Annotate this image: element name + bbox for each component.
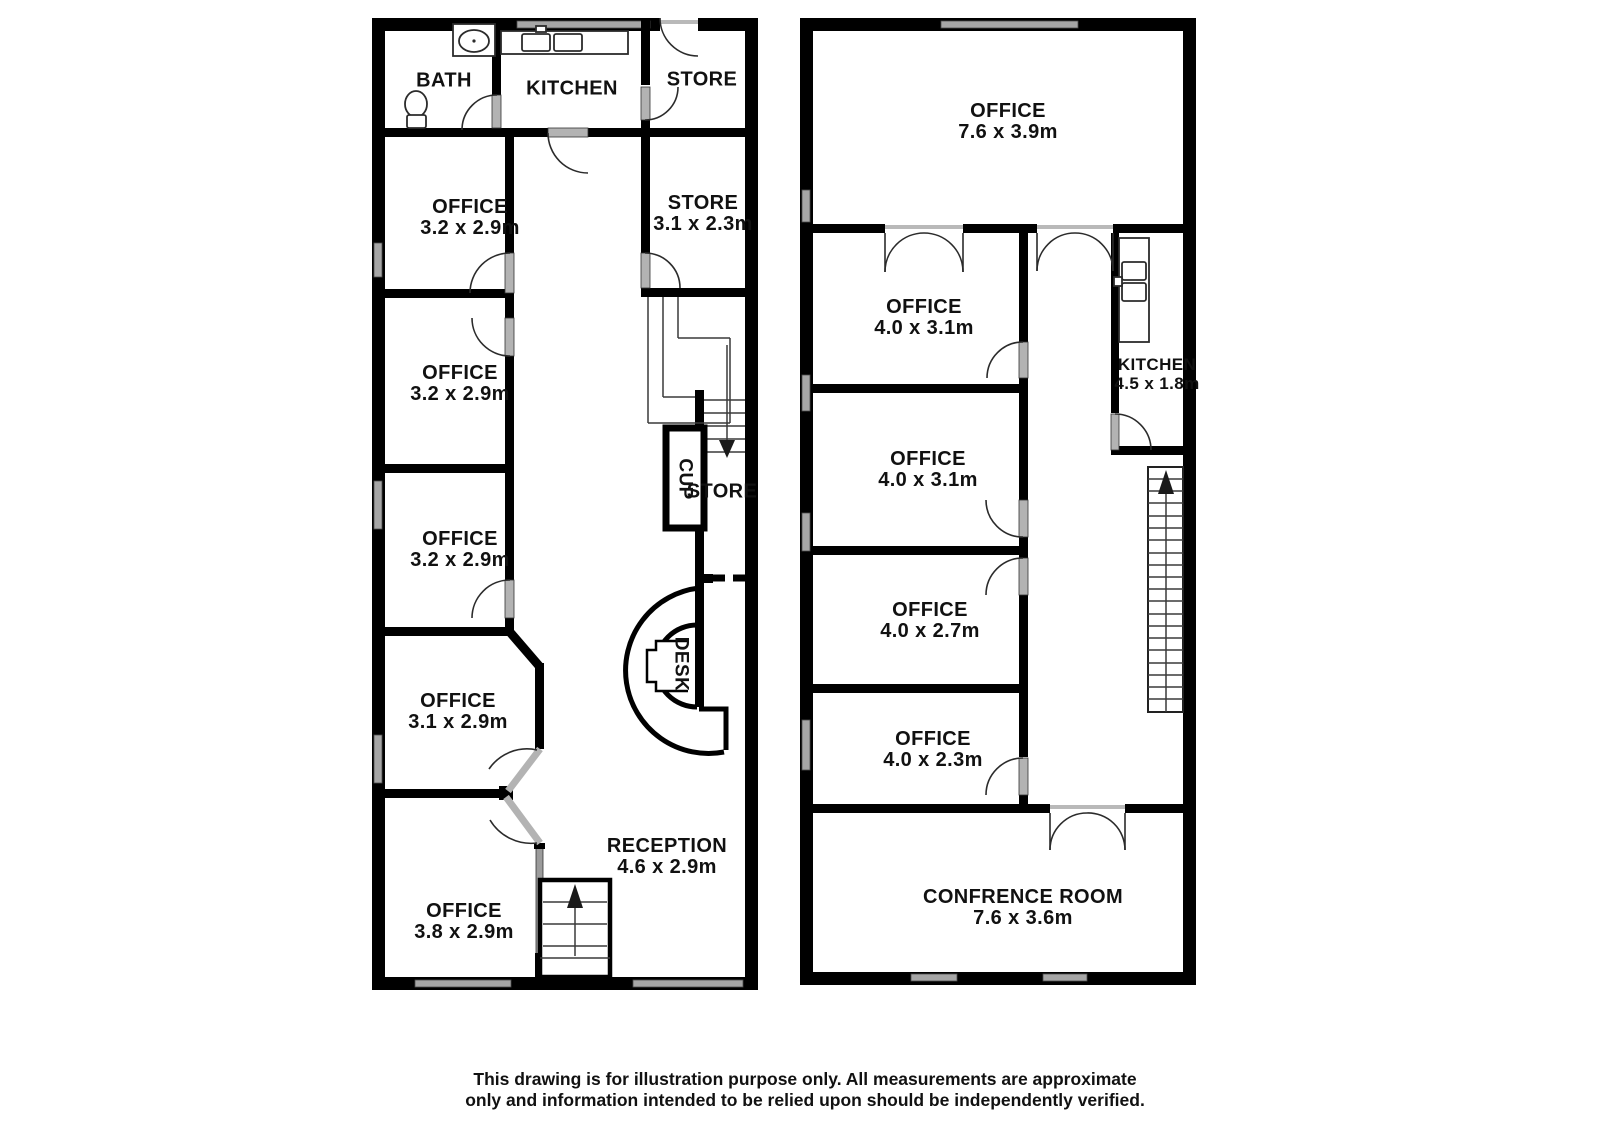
door-arc — [986, 558, 1023, 595]
room-label-kitchen-ground: KITCHEN — [526, 79, 618, 100]
room-dims: 4.0 x 3.1m — [878, 470, 978, 491]
room-label-office-4: OFFICE3.1 x 2.9m — [408, 691, 508, 733]
room-label-r-kitchen: KITCHEN4.5 x 1.8m — [1114, 355, 1199, 393]
room-name: OFFICE — [410, 529, 510, 550]
room-label-r-office-3: OFFICE4.0 x 2.7m — [880, 600, 980, 642]
room-name: KITCHEN — [526, 79, 618, 100]
room-label-office-2: OFFICE3.2 x 2.9m — [410, 363, 510, 405]
door-arc — [1075, 233, 1113, 271]
room-label-store-small: STORE — [687, 482, 758, 503]
disclaimer-text: This drawing is for illustration purpose… — [465, 1069, 1145, 1111]
room-label-office-1: OFFICE3.2 x 2.9m — [420, 197, 520, 239]
door-arc — [986, 500, 1023, 537]
windows — [802, 21, 1087, 981]
room-name: DESK — [671, 637, 692, 691]
room-dims: 7.6 x 3.9m — [958, 122, 1058, 143]
door-arc — [470, 253, 510, 293]
room-name: OFFICE — [410, 363, 510, 384]
bath-sink-icon — [453, 24, 495, 56]
room-dims: 3.2 x 2.9m — [410, 550, 510, 571]
door-arc — [986, 758, 1023, 795]
room-name: STORE — [687, 482, 758, 503]
kitchen-sink-icon — [1114, 238, 1149, 342]
door-arc — [472, 318, 510, 356]
room-label-office-3: OFFICE3.2 x 2.9m — [410, 529, 510, 571]
disclaimer-line-1: This drawing is for illustration purpose… — [465, 1069, 1145, 1090]
floorplan-drawing — [0, 0, 1600, 1132]
room-name: OFFICE — [878, 449, 978, 470]
room-label-conference: CONFRENCE ROOM7.6 x 3.6m — [923, 887, 1123, 929]
room-dims: 4.0 x 2.7m — [880, 621, 980, 642]
room-name: OFFICE — [408, 691, 508, 712]
room-name: BATH — [416, 71, 472, 92]
room-name: STORE — [667, 70, 738, 91]
room-dims: 3.1 x 2.9m — [408, 712, 508, 733]
disclaimer-line-2: only and information intended to be reli… — [465, 1090, 1145, 1111]
room-dims: 4.0 x 3.1m — [874, 318, 974, 339]
door-arc — [987, 342, 1023, 378]
room-name: OFFICE — [420, 197, 520, 218]
room-dims: 4.5 x 1.8m — [1114, 374, 1199, 393]
door-arc — [1115, 414, 1151, 450]
right-floor-plan — [800, 18, 1196, 985]
room-name: OFFICE — [958, 101, 1058, 122]
door-arc — [924, 233, 963, 272]
room-dims: 3.8 x 2.9m — [414, 922, 514, 943]
room-label-r-office-2: OFFICE4.0 x 3.1m — [878, 449, 978, 491]
room-label-r-office-4: OFFICE4.0 x 2.3m — [883, 729, 983, 771]
door-arc — [472, 580, 510, 618]
desk-label: DESK — [671, 637, 692, 691]
toilet-icon — [405, 91, 427, 128]
door-arc — [885, 233, 924, 272]
room-label-reception: RECEPTION4.6 x 2.9m — [607, 836, 727, 878]
room-label-store-mid: STORE3.1 x 2.3m — [653, 193, 753, 235]
room-name: OFFICE — [874, 297, 974, 318]
room-label-bath: BATH — [416, 71, 472, 92]
room-label-office-large: OFFICE7.6 x 3.9m — [958, 101, 1058, 143]
room-label-r-office-1: OFFICE4.0 x 3.1m — [874, 297, 974, 339]
room-dims: 3.1 x 2.3m — [653, 214, 753, 235]
room-name: OFFICE — [880, 600, 980, 621]
room-dims: 7.6 x 3.6m — [923, 908, 1123, 929]
door-arc — [548, 133, 588, 173]
room-name: OFFICE — [883, 729, 983, 750]
stairs-up-icon — [1148, 467, 1183, 712]
room-name: OFFICE — [414, 901, 514, 922]
kitchen-sink-icon — [501, 26, 628, 54]
room-name: KITCHEN — [1114, 355, 1199, 374]
door-arc — [1087, 813, 1125, 850]
room-name: STORE — [653, 193, 753, 214]
room-dims: 4.6 x 2.9m — [607, 857, 727, 878]
room-name: CONFRENCE ROOM — [923, 887, 1123, 908]
exterior-walls — [800, 18, 1196, 985]
floorplan-page: BATH KITCHEN STORE OFFICE3.2 x 2.9m STOR… — [0, 0, 1600, 1132]
room-dims: 3.2 x 2.9m — [420, 218, 520, 239]
room-label-store-top: STORE — [667, 70, 738, 91]
stairs-up-icon — [540, 880, 610, 977]
room-dims: 4.0 x 2.3m — [883, 750, 983, 771]
room-dims: 3.2 x 2.9m — [410, 384, 510, 405]
door-arc — [1037, 233, 1075, 271]
door-arc — [1050, 813, 1087, 850]
room-label-office-5: OFFICE3.8 x 2.9m — [414, 901, 514, 943]
room-name: RECEPTION — [607, 836, 727, 857]
